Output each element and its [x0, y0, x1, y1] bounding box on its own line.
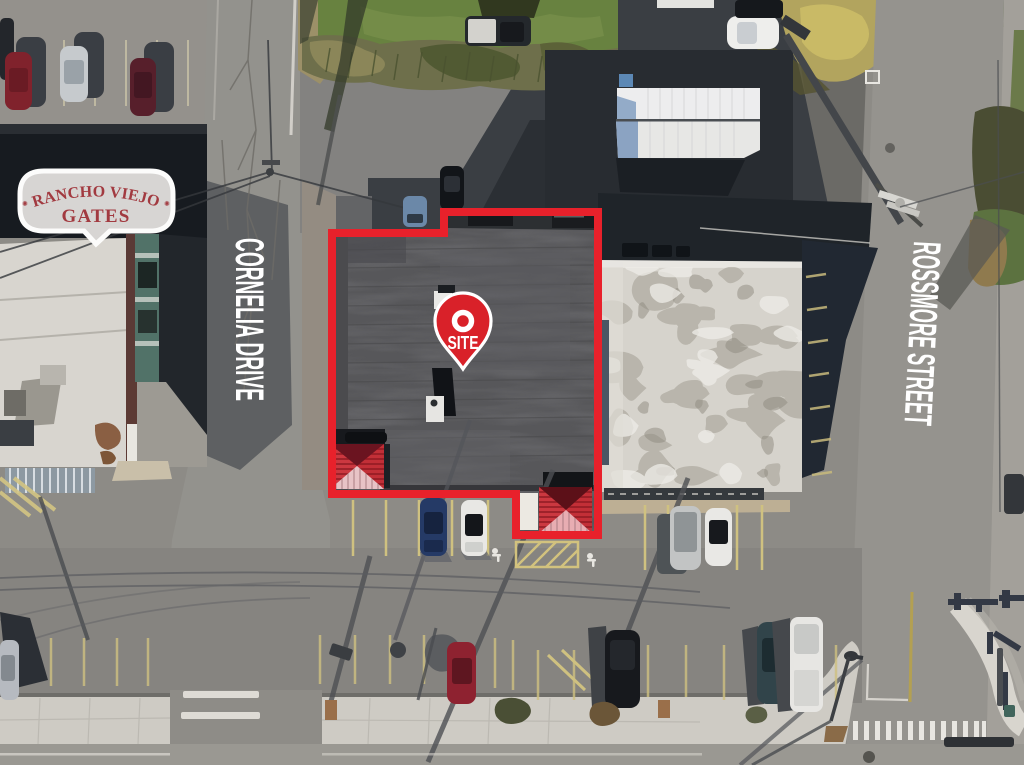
svg-text:✺: ✺ — [164, 200, 170, 208]
svg-text:GATES: GATES — [61, 206, 130, 227]
svg-text:CORNELIA DRIVE: CORNELIA DRIVE — [227, 238, 271, 401]
svg-text:✺: ✺ — [22, 200, 28, 208]
svg-text:SITE: SITE — [448, 333, 479, 353]
